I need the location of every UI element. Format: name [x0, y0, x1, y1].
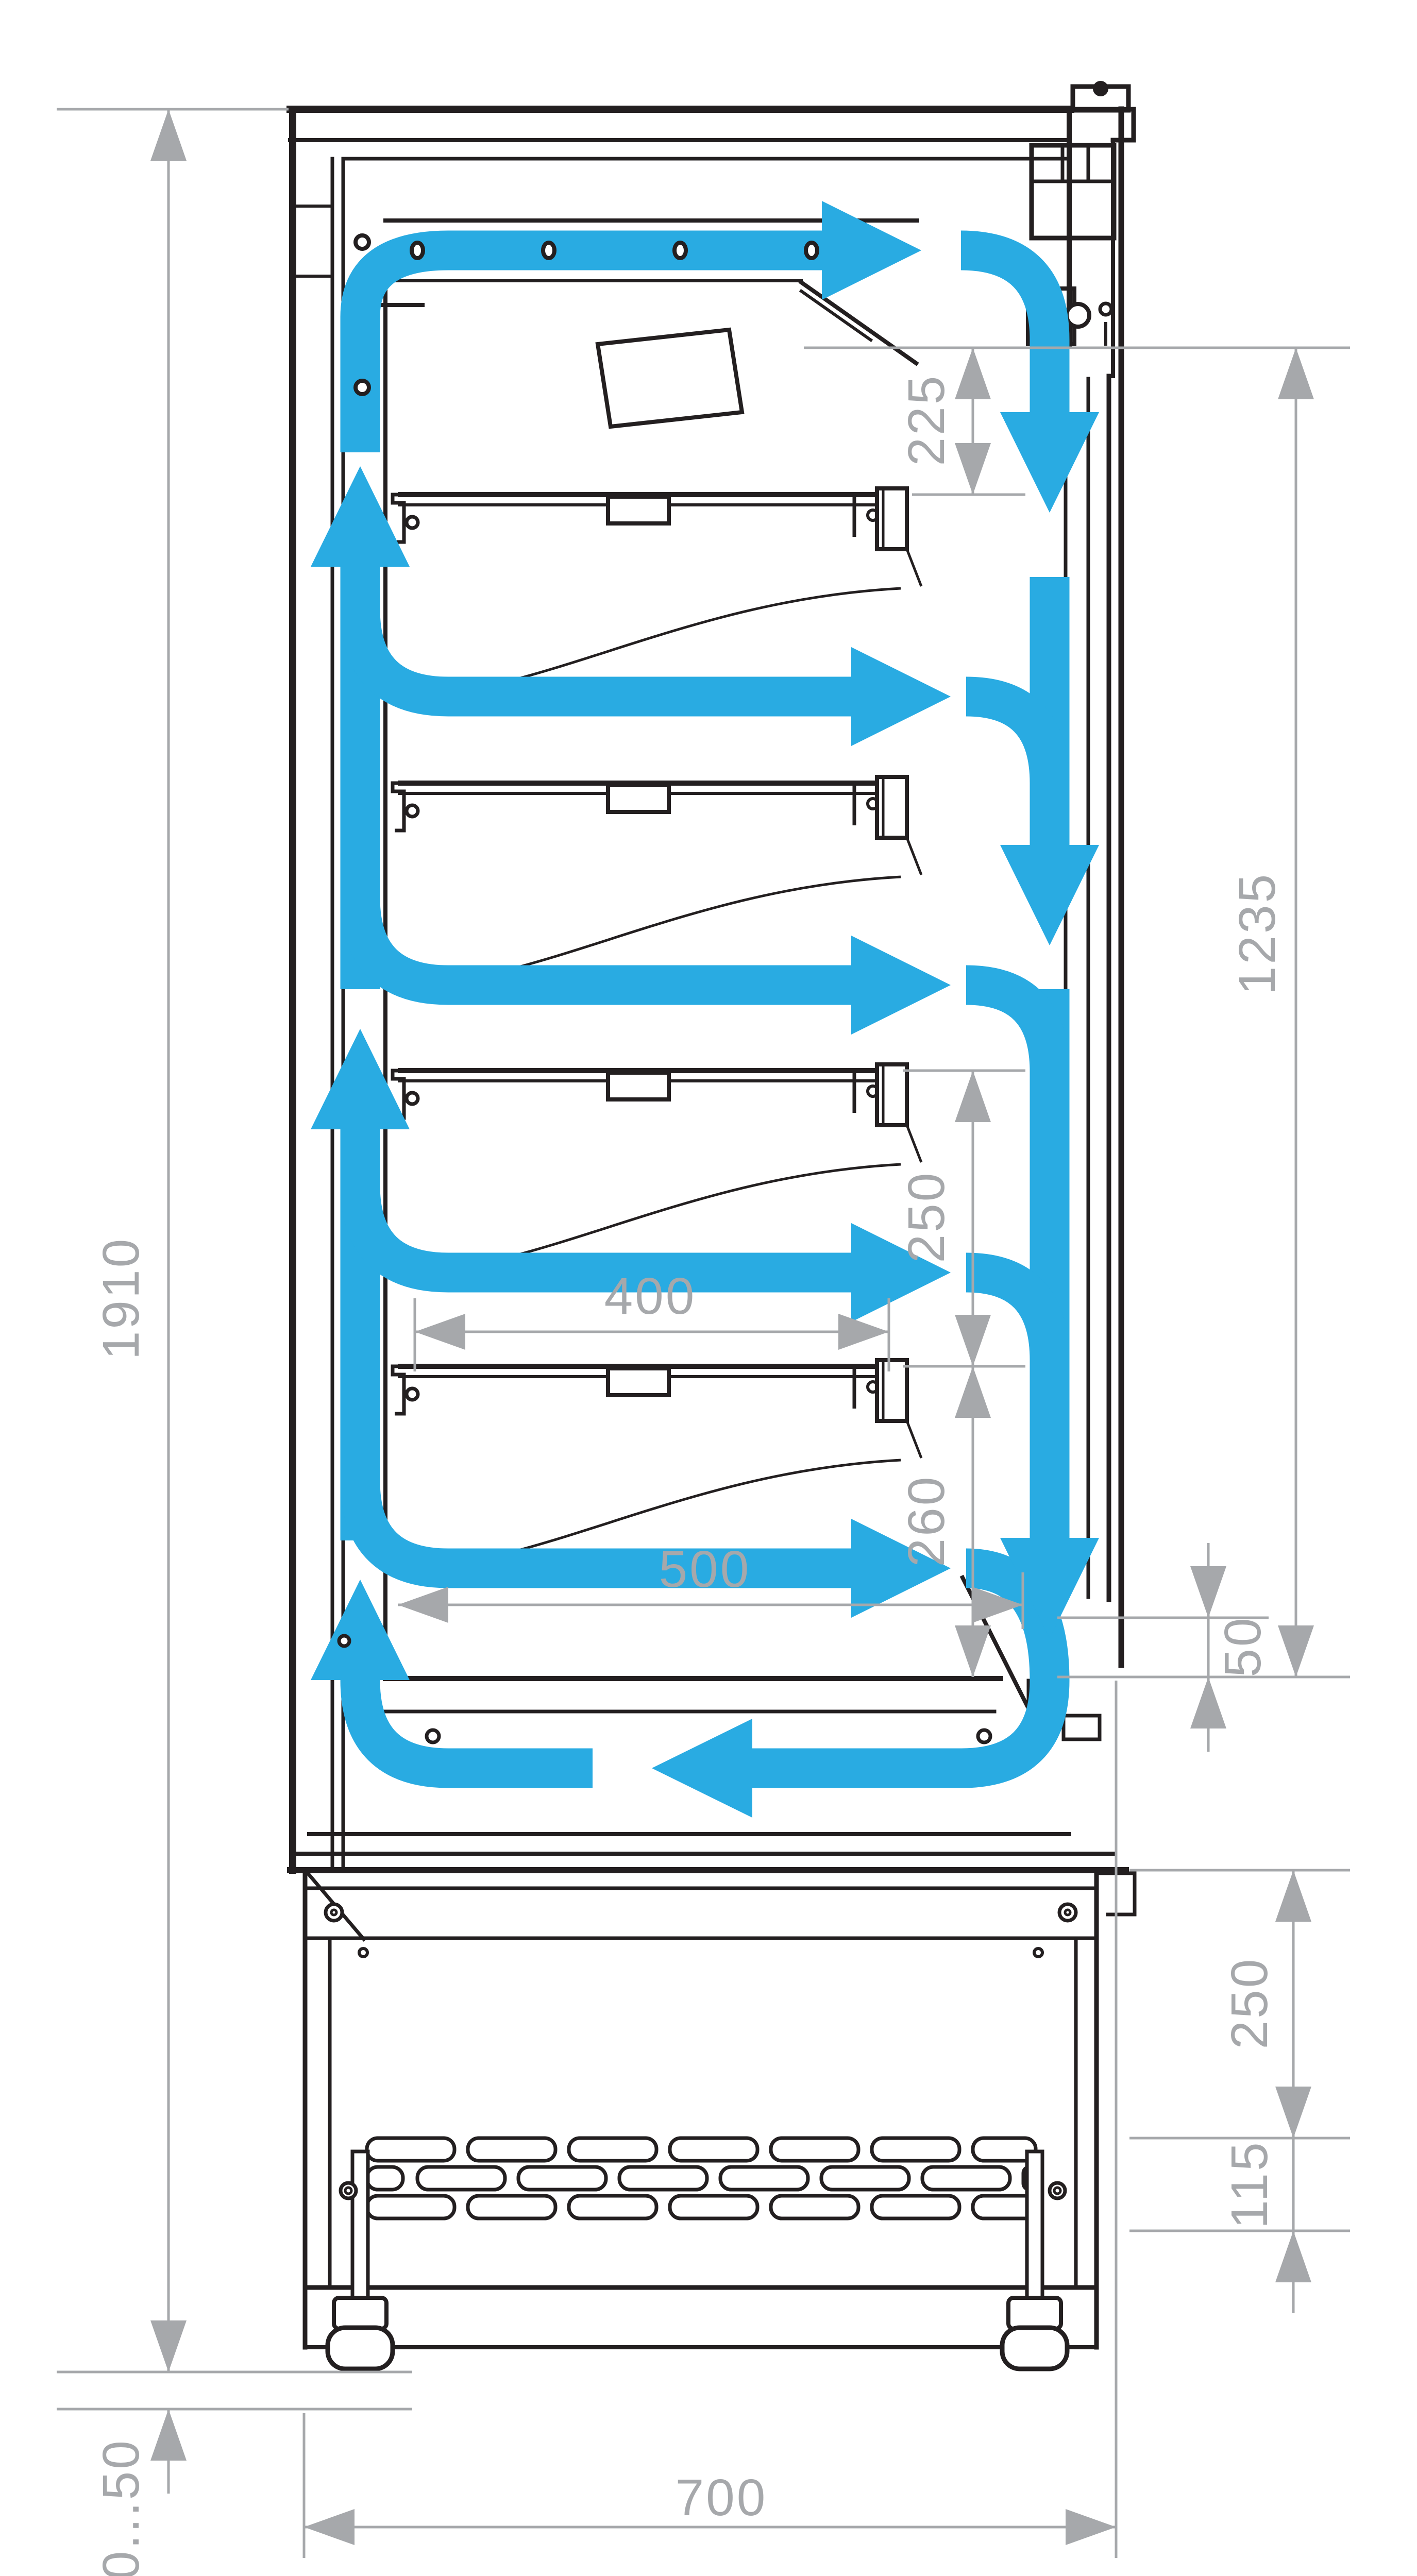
price-tag-rail — [877, 1360, 907, 1421]
basin-screw-icon — [427, 1730, 439, 1742]
airflow-band-bottom-return — [752, 1681, 1050, 1768]
dim-label-shelf-depth: 400 — [604, 1267, 697, 1325]
dim-overall-depth: 700 — [304, 2469, 1116, 2545]
vent-grille — [367, 2138, 1036, 2218]
airflow-arrowhead-down-icon — [1000, 412, 1099, 513]
wall-screw-icon — [356, 235, 369, 249]
hinge-bolt-icon — [1093, 81, 1108, 96]
price-tag-rail — [877, 777, 907, 838]
bottom-deck — [290, 1578, 1126, 1870]
dim-label-air-curtain: 1235 — [1228, 872, 1286, 995]
technical-drawing-page: 1910 30...50 700 225 1235 — [0, 0, 1417, 2576]
dim-base-front: 250 — [1221, 1870, 1311, 2138]
dim-label-deck-depth: 500 — [659, 1540, 751, 1598]
dim-shelf-spacing: 250 — [898, 1071, 991, 1366]
dim-label-vent-height: 115 — [1221, 2140, 1278, 2228]
price-tag-rail — [877, 1064, 907, 1125]
dim-label-base-front: 250 — [1221, 1957, 1278, 2049]
diagram-canvas: 1910 30...50 700 225 1235 — [0, 0, 1417, 2576]
airflow-merge-curve — [966, 985, 1050, 1072]
airflow-band-bottom-left-turn — [360, 1680, 593, 1768]
airflow-arrowhead-up-icon — [311, 466, 410, 567]
dim-label-overall-height: 1910 — [92, 1237, 150, 1360]
airflow-arrowhead-right-icon — [851, 647, 951, 746]
basin-screw-icon — [978, 1730, 990, 1742]
dim-label-last-shelf-gap: 260 — [898, 1475, 955, 1567]
dim-label-foot-range: 30...50 — [92, 2438, 150, 2576]
airflow-merge-curve — [966, 697, 1050, 783]
airflow-arrowhead-down-icon — [1000, 845, 1099, 945]
air-baffle — [801, 282, 916, 363]
dim-label-canopy-gap: 225 — [898, 374, 955, 466]
shelf-row — [385, 488, 921, 700]
foot-stem — [1027, 2151, 1042, 2300]
airflow-arrowhead-right-icon — [851, 936, 951, 1035]
foot-pad — [328, 2328, 393, 2369]
dim-label-shelf-spacing: 250 — [898, 1171, 955, 1263]
airflow-arrowhead-up-icon — [311, 1580, 410, 1680]
dim-label-overall-depth: 700 — [676, 2469, 768, 2527]
airflow-arrowhead-right-icon — [822, 201, 921, 300]
foot-stem — [352, 2151, 368, 2300]
dim-last-shelf-gap: 260 — [898, 1366, 991, 1677]
dim-air-curtain: 1235 — [1228, 348, 1314, 1677]
shelf-row — [385, 777, 921, 988]
base-front-panel — [330, 1938, 1076, 2287]
extension-lines — [57, 109, 1350, 2558]
dim-label-air-gap: 50 — [1214, 1616, 1272, 1677]
machine-base — [305, 1870, 1135, 2347]
dim-foot-range: 30...50 — [92, 2409, 187, 2576]
wall-screw-icon — [356, 381, 369, 394]
dim-air-gap: 50 — [1190, 1543, 1272, 1752]
dim-overall-height: 1910 — [92, 109, 187, 2372]
dim-canopy-gap: 225 — [898, 348, 991, 495]
dim-vent-height: 115 — [1221, 2138, 1311, 2313]
shelf-row — [385, 1360, 921, 1571]
shelves — [385, 488, 921, 1571]
light-fixture — [598, 330, 742, 427]
foot-pad — [1002, 2328, 1067, 2369]
airflow-arrowhead-left-icon — [652, 1719, 752, 1818]
wall-screw-icon — [339, 1636, 349, 1646]
shelf-row — [385, 1064, 921, 1276]
price-tag-rail — [877, 488, 907, 549]
